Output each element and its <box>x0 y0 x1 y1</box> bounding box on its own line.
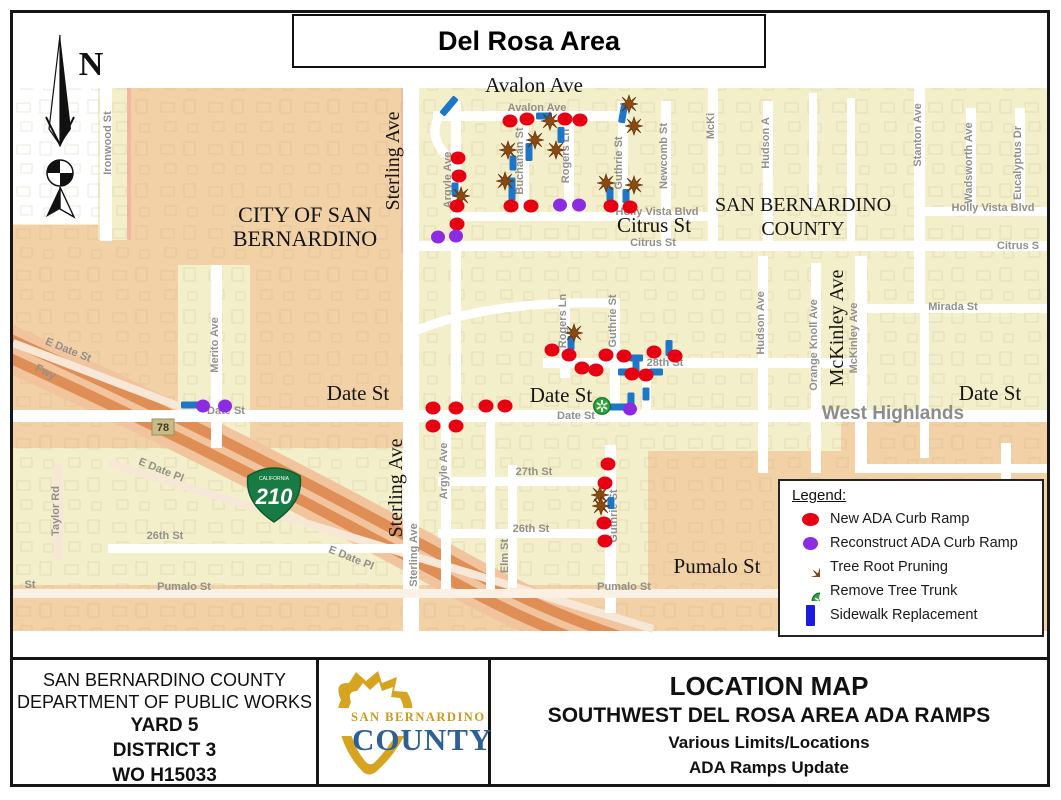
tree-trunk-icon <box>801 582 820 601</box>
reconstruct-ramp-icon <box>803 537 818 550</box>
new-ada-curb-ramp-marker <box>623 201 638 214</box>
tree-root-pruning-marker <box>620 95 638 113</box>
area-label: West Highlands <box>822 403 964 424</box>
svg-text:N: N <box>79 46 104 83</box>
street-label: Ironwood St <box>102 111 114 175</box>
street-label: Mirada St <box>928 301 978 313</box>
reconstruct-ada-curb-ramp-marker <box>218 400 232 413</box>
street-label: Citrus St <box>630 237 676 249</box>
reconstruct-ada-curb-ramp-marker <box>449 230 463 243</box>
new-ada-curb-ramp-marker <box>545 344 560 357</box>
street-label: Elm St <box>499 539 511 574</box>
area-label: COUNTY <box>761 218 844 240</box>
tree-root-pruning-marker <box>625 176 643 194</box>
legend-item-label: New ADA Curb Ramp <box>830 511 969 527</box>
new-ada-curb-ramp-marker <box>589 364 604 377</box>
street-label: Guthrie St <box>613 136 625 190</box>
location-map-title: LOCATION MAP <box>491 670 1047 702</box>
agency-name: SAN BERNARDINO COUNTY <box>13 669 316 691</box>
new-ada-curb-ramp-marker <box>647 346 662 359</box>
svg-text:78: 78 <box>157 422 169 434</box>
svg-text:210: 210 <box>255 484 293 509</box>
new-ada-curb-ramp-marker <box>504 200 519 213</box>
agency-workorder: WO H15033 <box>13 763 316 788</box>
new-ada-curb-ramp-marker <box>479 400 494 413</box>
tree-root-pruning-marker <box>625 117 643 135</box>
svg-text:CALIFORNIA: CALIFORNIA <box>259 476 290 482</box>
new-ada-curb-ramp-marker <box>573 114 588 127</box>
legend-item: Sidewalk Replacement <box>790 603 1042 627</box>
street-label: Newcomb St <box>658 123 670 189</box>
sidewalk-replacement-marker <box>608 497 615 509</box>
new-ada-curb-ramp-marker <box>520 113 535 126</box>
location-map-page: Ironwood StAvalon AveArgyle AveBuchanan … <box>0 0 1061 800</box>
new-ada-curb-ramp-marker <box>604 200 619 213</box>
area-label: McKinley Ave <box>826 269 848 386</box>
area-label: Date St <box>327 381 390 405</box>
new-ada-curb-ramp-marker <box>639 369 654 382</box>
sidewalk-replacement-marker <box>558 127 565 143</box>
new-ada-curb-ramp-marker <box>597 517 612 530</box>
reconstruct-ada-curb-ramp-marker <box>572 199 586 212</box>
tree-root-pruning-marker <box>565 324 583 342</box>
area-label: Sterling Ave <box>385 438 407 537</box>
area-label: CITY OF SAN <box>238 202 372 227</box>
legend-rows: New ADA Curb RampReconstruct ADA Curb Ra… <box>790 507 1042 627</box>
new-ada-curb-ramp-marker <box>503 115 518 128</box>
street-label: Citrus S <box>997 240 1039 252</box>
project-type: ADA Ramps Update <box>491 755 1047 780</box>
map-area-title: Del Rosa Area <box>292 14 766 68</box>
area-label: BERNARDINO <box>233 226 377 251</box>
street-label: McKi <box>705 113 717 139</box>
new-ada-curb-ramp-marker <box>598 535 613 548</box>
street-label: Avalon Ave <box>508 102 567 114</box>
area-label: Date St <box>959 381 1022 405</box>
new-ada-curb-ramp-marker <box>449 420 464 433</box>
street-label: Date St <box>557 410 595 422</box>
street-label: Hudson Ave <box>755 291 767 354</box>
tree-root-pruning-marker <box>496 172 514 190</box>
agency-yard: YARD 5 <box>13 713 316 738</box>
new-ada-curb-ramp-marker <box>598 477 613 490</box>
logo-text-bottom: COUNTY <box>352 722 492 758</box>
project-name: SOUTHWEST DEL ROSA AREA ADA RAMPS <box>491 702 1047 730</box>
legend-item-label: Reconstruct ADA Curb Ramp <box>830 535 1018 551</box>
legend-item-label: Sidewalk Replacement <box>830 607 978 623</box>
street-label: Wadsworth Ave <box>963 122 975 203</box>
new-ada-curb-ramp-marker <box>426 420 441 433</box>
reconstruct-ada-curb-ramp-marker <box>623 403 637 416</box>
street-label: Holly Vista Blvd <box>952 202 1035 214</box>
street-label: St <box>25 579 36 591</box>
street-label: Pumalo St <box>157 581 211 593</box>
sidewalk-replacement-marker <box>643 388 650 401</box>
street-label: 27th St <box>516 466 553 478</box>
legend: Legend: New ADA Curb RampReconstruct ADA… <box>778 479 1044 637</box>
legend-item: New ADA Curb Ramp <box>790 507 1042 531</box>
street-label: McKinley Ave <box>848 303 860 374</box>
new-ada-curb-ramp-marker <box>625 368 640 381</box>
area-label: SAN BERNARDINO <box>715 194 891 216</box>
tree-root-pruning-marker <box>499 141 517 159</box>
street-label: Guthrie St <box>607 294 619 348</box>
area-label: Date St <box>530 383 593 407</box>
title-block: SAN BERNARDINO COUNTY DEPARTMENT OF PUBL… <box>13 657 1047 787</box>
street-label: 26th St <box>147 530 184 542</box>
legend-item: Remove Tree Trunk <box>790 579 1042 603</box>
street-label: Eucalyptus Dr <box>1012 125 1024 200</box>
legend-item: Reconstruct ADA Curb Ramp <box>790 531 1042 555</box>
new-ada-curb-ramp-marker <box>599 349 614 362</box>
new-ada-curb-ramp-marker <box>617 350 632 363</box>
new-ada-curb-ramp-marker <box>601 458 616 471</box>
reconstruct-ada-curb-ramp-marker <box>196 400 210 413</box>
new-ada-curb-ramp-marker <box>562 349 577 362</box>
reconstruct-ada-curb-ramp-marker <box>431 231 445 244</box>
new-ada-curb-ramp-marker <box>498 400 513 413</box>
county-logo-panel: SAN BERNARDINO COUNTY <box>319 660 491 787</box>
agency-dept: DEPARTMENT OF PUBLIC WORKS <box>13 691 316 713</box>
area-label: Sterling Ave <box>382 111 404 210</box>
new-ada-curb-ramp-marker <box>451 152 466 165</box>
street-label: Argyle Ave <box>438 443 450 500</box>
street-label: Pumalo St <box>597 581 651 593</box>
agency-district: DISTRICT 3 <box>13 738 316 763</box>
new-ada-curb-ramp-marker <box>524 200 539 213</box>
agency-panel: SAN BERNARDINO COUNTY DEPARTMENT OF PUBL… <box>13 660 319 787</box>
legend-item-label: Tree Root Pruning <box>830 559 948 575</box>
street-label: Stanton Ave <box>912 103 924 166</box>
area-label: Avalon Ave <box>485 73 583 97</box>
legend-title: Legend: <box>792 487 1042 504</box>
tree-root-pruning-marker <box>541 112 559 130</box>
new-ramp-icon <box>802 513 819 526</box>
street-label: 26th St <box>513 523 550 535</box>
new-ada-curb-ramp-marker <box>450 218 465 231</box>
new-ada-curb-ramp-marker <box>558 113 573 126</box>
street-label: Hudson A <box>760 117 772 169</box>
new-ada-curb-ramp-marker <box>426 402 441 415</box>
legend-item: Tree Root Pruning <box>790 555 1042 579</box>
new-ada-curb-ramp-marker <box>452 170 467 183</box>
tree-root-pruning-marker <box>592 497 610 515</box>
street-label: Orange Knoll Ave <box>808 299 820 390</box>
street-label: Sterling Ave <box>408 523 420 586</box>
sidewalk-replacement-marker <box>510 156 517 171</box>
map-title-panel: LOCATION MAP SOUTHWEST DEL ROSA AREA ADA… <box>491 660 1047 787</box>
new-ada-curb-ramp-marker <box>668 350 683 363</box>
area-label: Citrus St <box>617 213 691 237</box>
new-ada-curb-ramp-marker <box>449 402 464 415</box>
street-label: Merito Ave <box>209 317 221 372</box>
project-limits: Various Limits/Locations <box>491 730 1047 755</box>
county-logo: SAN BERNARDINO COUNTY <box>325 666 483 780</box>
legend-item-label: Remove Tree Trunk <box>830 583 957 599</box>
tree-root-pruning-marker <box>547 141 565 159</box>
tree-root-pruning-marker <box>597 174 615 192</box>
new-ada-curb-ramp-marker <box>575 362 590 375</box>
new-ada-curb-ramp-marker <box>450 200 465 213</box>
map-frame: Ironwood StAvalon AveArgyle AveBuchanan … <box>10 10 1050 787</box>
street-label: Taylor Rd <box>50 486 62 536</box>
tree-root-pruning-marker <box>526 131 544 149</box>
area-label: Pumalo St <box>674 554 761 578</box>
reconstruct-ada-curb-ramp-marker <box>553 199 567 212</box>
remove-tree-trunk-marker <box>594 398 611 415</box>
tree-root-icon <box>801 558 820 577</box>
sidewalk-icon <box>806 605 815 626</box>
